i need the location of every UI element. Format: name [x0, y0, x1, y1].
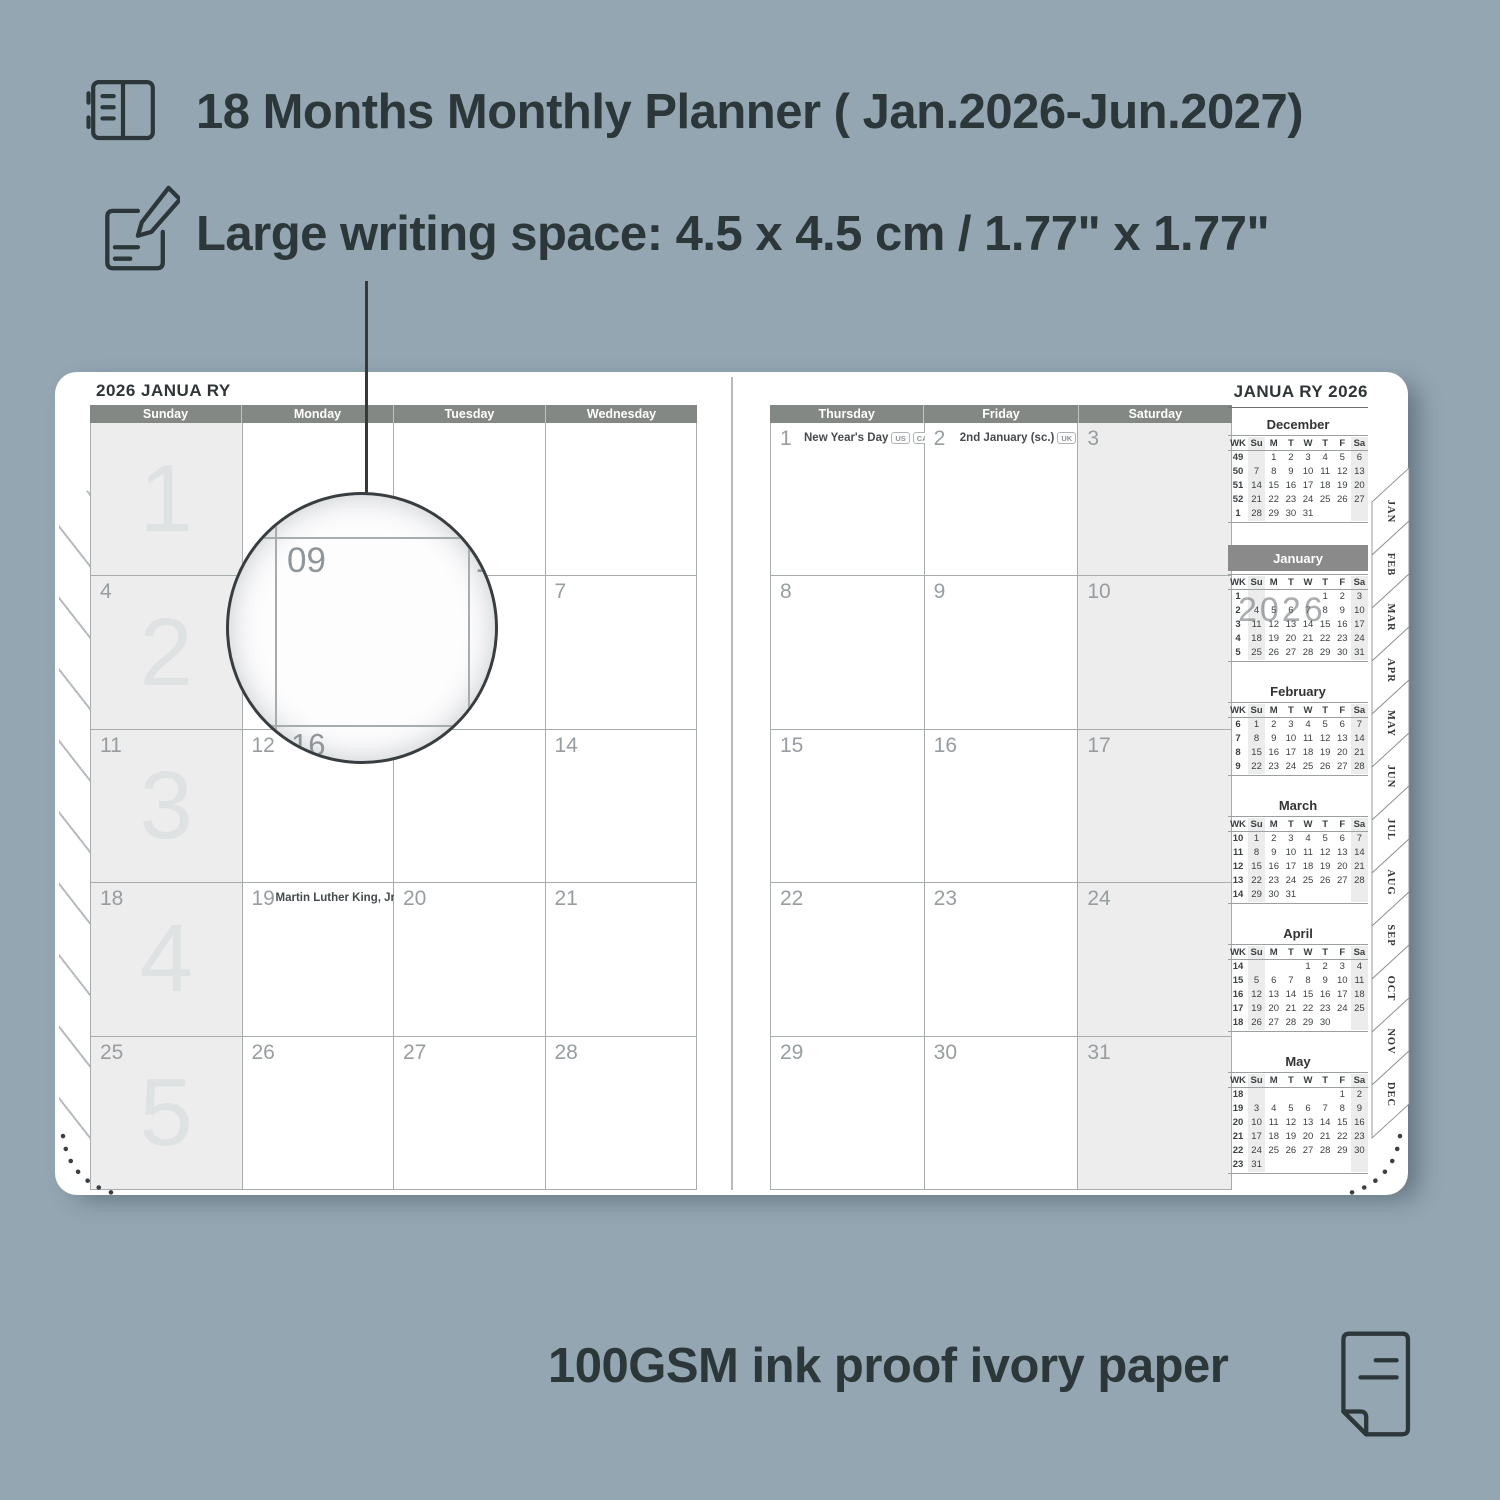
mini-calendar-day: 13	[1334, 732, 1351, 746]
mini-calendar-day: 13	[1228, 874, 1248, 888]
calendar-cell: 1	[91, 423, 243, 576]
mini-calendar-weekday: T	[1282, 576, 1299, 590]
holiday-name: New Year's Day	[804, 432, 888, 444]
calendar-cell: 31	[1078, 1037, 1232, 1190]
mini-calendar-day	[1334, 888, 1351, 902]
mini-calendar-weekday: T	[1317, 818, 1334, 832]
mini-calendar-day: 2	[1317, 960, 1334, 974]
mini-calendar-day: 9	[1317, 974, 1334, 988]
mini-calendar-day: 3	[1351, 590, 1368, 604]
mini-calendar-weekday: W	[1299, 1074, 1316, 1088]
mini-calendar: AprilWKSuMTWTFSa141234155678910111612131…	[1228, 926, 1368, 1032]
month-tab-label: DEC	[1385, 1082, 1396, 1107]
mini-calendar-day: 5	[1317, 718, 1334, 732]
day-header: Wednesday	[546, 405, 697, 423]
date-number: 23	[934, 887, 957, 911]
mini-calendar-day: 52	[1228, 493, 1248, 507]
mini-calendar-day: 6	[1299, 1102, 1316, 1116]
date-number: 16	[934, 734, 957, 758]
calendar-cell: 10	[1078, 576, 1232, 729]
mini-calendar-day: 26	[1334, 493, 1351, 507]
mini-calendar-day: 29	[1248, 888, 1265, 902]
calendar-cell: 19Martin Luther King, Jr. DayUS	[243, 883, 395, 1036]
calendar-cell: 24	[91, 576, 243, 729]
mini-calendar-day: 30	[1282, 507, 1299, 521]
mini-calendar-grid: WKSuMTWTFSa10123456711891011121314121516…	[1228, 816, 1368, 904]
mini-calendar-day: 15	[1228, 974, 1248, 988]
mini-calendar-day: 15	[1248, 746, 1265, 760]
mini-calendar-day: 26	[1282, 1144, 1299, 1158]
mini-calendar-day: 4	[1228, 632, 1248, 646]
mini-calendar-day: 8	[1299, 974, 1316, 988]
mini-calendar-day: 22	[1248, 760, 1265, 774]
mini-calendar-day: 3	[1334, 960, 1351, 974]
mini-calendar-day: 14	[1351, 732, 1368, 746]
mini-calendar-title: May	[1228, 1054, 1368, 1069]
mini-calendar-day: 13	[1265, 988, 1282, 1002]
mini-calendar-weekday: T	[1317, 946, 1334, 960]
mini-calendar-day: 7	[1248, 465, 1265, 479]
mini-calendar-day: 19	[1265, 632, 1282, 646]
mini-calendar-weekday: WK	[1228, 576, 1248, 590]
month-tab-label: MAR	[1385, 603, 1396, 631]
mini-calendar-title: April	[1228, 926, 1368, 941]
mini-calendar-day: 21	[1351, 746, 1368, 760]
mini-calendar-day: 10	[1299, 465, 1316, 479]
right-month-grid: ThursdayFridaySaturday1New Year's DayUSC…	[770, 405, 1232, 1190]
mini-calendar-day: 2	[1265, 718, 1282, 732]
mini-calendar-grid: WKSuMTWTFSa49123456507891011121351141516…	[1228, 435, 1368, 523]
mini-calendar-day: 17	[1282, 746, 1299, 760]
mini-calendar-weekday: F	[1334, 946, 1351, 960]
mini-calendar-day	[1282, 1088, 1299, 1102]
mini-calendar-day: 24	[1282, 760, 1299, 774]
mini-calendar-day: 19	[1317, 860, 1334, 874]
mini-calendar-day: 14	[1351, 846, 1368, 860]
mini-calendar-day	[1317, 1158, 1334, 1172]
mini-calendar-day: 13	[1334, 846, 1351, 860]
mini-calendar-grid: WKSuMTWTFSa18121934567892010111213141516…	[1228, 1072, 1368, 1174]
holiday-label: 2nd January (sc.)UK	[965, 432, 1072, 444]
mini-calendar-day: 26	[1317, 874, 1334, 888]
mini-calendar-day	[1248, 960, 1265, 974]
mini-calendar-grid: WKSuMTWTFSa14123415567891011161213141516…	[1228, 944, 1368, 1032]
mini-calendar-weekday: WK	[1228, 437, 1248, 451]
feature-title-writing-space: Large writing space: 4.5 x 4.5 cm / 1.77…	[196, 206, 1269, 262]
mini-calendar-day	[1248, 1088, 1265, 1102]
mini-calendar-grid: WKSuMTWTFSa61234567789101112131481516171…	[1228, 702, 1368, 776]
mini-calendar-day: 17	[1282, 860, 1299, 874]
mini-calendar-day: 23	[1282, 493, 1299, 507]
mini-calendar-weekday: W	[1299, 437, 1316, 451]
mini-calendar-sidebar: JANUA RY 2026 DecemberWKSuMTWTFSa4912345…	[1228, 382, 1368, 1174]
mini-calendar: DecemberWKSuMTWTFSa491234565078910111213…	[1228, 417, 1368, 523]
mini-calendar-day: 17	[1228, 1002, 1248, 1016]
mini-calendar-day: 20	[1228, 1116, 1248, 1130]
week-number-watermark: 1	[91, 423, 242, 575]
calendar-cell: 15	[771, 730, 925, 883]
mini-calendar-day	[1299, 888, 1316, 902]
mini-calendar-weekday: M	[1265, 818, 1282, 832]
mini-calendar-day: 11	[1228, 846, 1248, 860]
mini-calendar-day	[1351, 1158, 1368, 1172]
month-tab-label: APR	[1385, 658, 1396, 683]
mini-calendar-day: 21	[1282, 1002, 1299, 1016]
mini-calendar-day: 19	[1228, 1102, 1248, 1116]
mini-calendar-day: 10	[1282, 846, 1299, 860]
date-number: 24	[1087, 887, 1110, 911]
mini-calendar-weekday: F	[1334, 576, 1351, 590]
date-number: 3	[1087, 427, 1099, 451]
mini-calendar-day: 31	[1351, 646, 1368, 660]
mini-calendar-day: 14	[1228, 960, 1248, 974]
mini-calendar-day	[1317, 507, 1334, 521]
mini-calendar-weekday: Sa	[1351, 946, 1368, 960]
month-tab-label: JUN	[1385, 765, 1396, 788]
calendar-cell: 28	[546, 1037, 698, 1190]
mini-calendar-day: 25	[1265, 1144, 1282, 1158]
mini-calendar-day: 25	[1299, 874, 1316, 888]
mini-calendar-day	[1265, 960, 1282, 974]
day-header: Thursday	[770, 405, 924, 423]
magnified-grid-line	[229, 537, 495, 539]
mini-calendar-day: 22	[1265, 493, 1282, 507]
calendar-cell: 20	[394, 883, 546, 1036]
mini-calendar-day: 24	[1334, 1002, 1351, 1016]
mini-calendar-day: 20	[1351, 479, 1368, 493]
calendar-cell: 21	[546, 883, 698, 1036]
mini-calendar-weekday: M	[1265, 704, 1282, 718]
mini-calendar-day: 8	[1228, 746, 1248, 760]
spine-divider	[731, 377, 733, 1190]
mini-calendar-day: 51	[1228, 479, 1248, 493]
mini-calendar-day: 11	[1299, 846, 1316, 860]
mini-calendar-day: 24	[1282, 874, 1299, 888]
mini-calendar-weekday: WK	[1228, 946, 1248, 960]
mini-calendar-weekday: W	[1299, 818, 1316, 832]
magnified-date: 09	[287, 541, 326, 581]
mini-calendar-weekday: Sa	[1351, 1074, 1368, 1088]
mini-calendar-day: 20	[1334, 860, 1351, 874]
mini-calendar-day: 14	[1228, 888, 1248, 902]
date-number: 7	[555, 580, 567, 604]
mini-calendar-day	[1248, 451, 1265, 465]
date-number: 27	[403, 1041, 426, 1065]
month-tab-label: AUG	[1385, 869, 1396, 895]
magnified-grid-line	[229, 725, 495, 727]
mini-calendar-day: 19	[1334, 479, 1351, 493]
mini-calendar-day: 5	[1228, 646, 1248, 660]
mini-calendar-day: 28	[1317, 1144, 1334, 1158]
mini-calendar-day: 16	[1317, 988, 1334, 1002]
mini-calendar-day: 15	[1248, 860, 1265, 874]
month-tab-label: MAY	[1385, 710, 1396, 737]
mini-calendar-day: 10	[1248, 1116, 1265, 1130]
mini-calendar-day: 27	[1334, 874, 1351, 888]
date-number: 25	[100, 1041, 123, 1065]
mini-calendar-day: 25	[1248, 646, 1265, 660]
date-number: 10	[1087, 580, 1110, 604]
date-number: 12	[252, 734, 275, 758]
mini-calendar-day: 20	[1299, 1130, 1316, 1144]
mini-calendar-day: 4	[1265, 1102, 1282, 1116]
mini-calendar-day	[1334, 1158, 1351, 1172]
mini-calendar-day: 22	[1317, 632, 1334, 646]
mini-calendar-weekday: F	[1334, 704, 1351, 718]
mini-calendar-weekday: T	[1282, 704, 1299, 718]
mini-calendar-day: 7	[1317, 1102, 1334, 1116]
mini-calendar-day: 22	[1334, 1130, 1351, 1144]
mini-calendar-day: 15	[1265, 479, 1282, 493]
product-image: 18 Months Monthly Planner ( Jan.2026-Jun…	[0, 0, 1500, 1500]
calendar-cell	[546, 423, 698, 576]
mini-calendar-day: 3	[1299, 451, 1316, 465]
mini-calendar-weekday: F	[1334, 1074, 1351, 1088]
mini-calendar-day: 50	[1228, 465, 1248, 479]
mini-calendar-day: 9	[1228, 760, 1248, 774]
mini-calendar-day: 1	[1248, 832, 1265, 846]
mini-calendar-day: 12	[1317, 846, 1334, 860]
mini-calendar-day: 28	[1351, 760, 1368, 774]
day-header-row: ThursdayFridaySaturday	[770, 405, 1232, 423]
mini-calendar-day: 28	[1282, 1016, 1299, 1030]
mini-calendar-day: 21	[1228, 1130, 1248, 1144]
mini-calendar-day	[1334, 1016, 1351, 1030]
mini-calendar-day: 11	[1351, 974, 1368, 988]
mini-calendar-day: 22	[1228, 1144, 1248, 1158]
mini-calendar-weekday: M	[1265, 946, 1282, 960]
mini-calendar-weekday: W	[1299, 704, 1316, 718]
date-number: 8	[780, 580, 792, 604]
calendar-cell: 30	[925, 1037, 1079, 1190]
calendar-cell: 7	[546, 576, 698, 729]
mini-calendar-day: 17	[1248, 1130, 1265, 1144]
mini-calendar-day	[1299, 1158, 1316, 1172]
mini-calendar-day: 2	[1265, 832, 1282, 846]
magnifier-circle: 09 10 16	[226, 492, 498, 764]
date-number: 17	[1087, 734, 1110, 758]
mini-calendar-weekday: Sa	[1351, 437, 1368, 451]
mini-calendar-day	[1299, 1088, 1316, 1102]
mini-calendar-day: 26	[1248, 1016, 1265, 1030]
mini-calendar-day: 1	[1334, 1088, 1351, 1102]
paper-sheet-icon	[1322, 1328, 1418, 1440]
mini-calendar-weekday: Sa	[1351, 576, 1368, 590]
mini-calendar-day: 18	[1228, 1016, 1248, 1030]
mini-calendar-day: 24	[1248, 1144, 1265, 1158]
mini-calendar-day	[1317, 888, 1334, 902]
calendar-cell: 16	[925, 730, 1079, 883]
date-number: 2	[934, 427, 946, 451]
year-watermark: 2026	[1238, 591, 1326, 630]
mini-calendar-day: 18	[1317, 479, 1334, 493]
month-tab-label: SEP	[1385, 924, 1396, 946]
mini-calendar-day: 12	[1228, 860, 1248, 874]
mini-calendar-day	[1317, 1088, 1334, 1102]
mini-calendar-day: 30	[1265, 888, 1282, 902]
mini-calendar-day: 29	[1334, 1144, 1351, 1158]
mini-calendar-day: 8	[1248, 846, 1265, 860]
mini-calendar-day: 30	[1351, 1144, 1368, 1158]
mini-calendar-day: 28	[1248, 507, 1265, 521]
mini-calendar-day: 25	[1317, 493, 1334, 507]
country-badge: US	[891, 432, 909, 444]
calendar-cell: 26	[243, 1037, 395, 1190]
magnified-date: 16	[291, 727, 325, 763]
date-number: 22	[780, 887, 803, 911]
magnified-grid-line	[275, 495, 277, 761]
mini-calendar-weekday: Su	[1248, 576, 1265, 590]
mini-calendar-day: 30	[1334, 646, 1351, 660]
month-tab-label: JAN	[1385, 500, 1396, 523]
mini-calendar-day: 29	[1265, 507, 1282, 521]
mini-calendar-weekday: Sa	[1351, 818, 1368, 832]
mini-calendar-day: 9	[1351, 1102, 1368, 1116]
mini-calendar-weekday: W	[1299, 946, 1316, 960]
mini-calendar-day: 8	[1265, 465, 1282, 479]
mini-calendar-weekday: W	[1299, 576, 1316, 590]
mini-calendar-day	[1282, 960, 1299, 974]
date-number: 4	[100, 580, 112, 604]
calendar-cell: 1New Year's DayUSCAUKIE	[771, 423, 925, 576]
mini-calendar-day: 25	[1299, 760, 1316, 774]
mini-calendar-day: 14	[1317, 1116, 1334, 1130]
mini-calendar-day: 1	[1299, 960, 1316, 974]
mini-calendar-weekday: Su	[1248, 1074, 1265, 1088]
mini-calendar-day: 18	[1228, 1088, 1248, 1102]
feature-title-planner-range: 18 Months Monthly Planner ( Jan.2026-Jun…	[196, 84, 1303, 140]
mini-calendar-weekday: Su	[1248, 946, 1265, 960]
mini-calendar-day: 3	[1282, 718, 1299, 732]
mini-calendar-list: DecemberWKSuMTWTFSa491234565078910111213…	[1228, 417, 1368, 1174]
date-number: 20	[403, 887, 426, 911]
mini-calendar-day: 30	[1317, 1016, 1334, 1030]
mini-calendar-day: 4	[1299, 832, 1316, 846]
mini-calendar-day: 27	[1351, 493, 1368, 507]
mini-calendar-day: 16	[1265, 860, 1282, 874]
mini-calendar-day: 18	[1265, 1130, 1282, 1144]
mini-calendar-day: 28	[1299, 646, 1316, 660]
left-page-title: 2026 JANUA RY	[96, 381, 231, 401]
mini-calendar-day: 22	[1248, 874, 1265, 888]
calendar-cells: 1New Year's DayUSCAUKIE22nd January (sc.…	[770, 423, 1232, 1190]
mini-calendar-day: 18	[1248, 632, 1265, 646]
mini-calendar-day: 6	[1351, 451, 1368, 465]
mini-calendar-day: 10	[1334, 974, 1351, 988]
mini-calendar-day: 7	[1351, 718, 1368, 732]
mini-calendar-day: 17	[1334, 988, 1351, 1002]
mini-calendar-day	[1351, 507, 1368, 521]
mini-calendar-day: 16	[1282, 479, 1299, 493]
mini-calendar-day: 21	[1317, 1130, 1334, 1144]
mini-calendar-day: 14	[1282, 988, 1299, 1002]
day-header-row: SundayMondayTuesdayWednesday	[90, 405, 697, 423]
day-header: Tuesday	[394, 405, 546, 423]
calendar-cell: 24	[1078, 883, 1232, 1036]
mini-calendar-day: 20	[1265, 1002, 1282, 1016]
mini-calendar-day: 12	[1248, 988, 1265, 1002]
mini-calendar-day: 19	[1248, 1002, 1265, 1016]
mini-calendar-day: 10	[1351, 604, 1368, 618]
mini-calendar-day: 23	[1228, 1158, 1248, 1172]
calendar-cell: 311	[91, 730, 243, 883]
mini-calendar-day: 7	[1228, 732, 1248, 746]
mini-calendar-day: 16	[1265, 746, 1282, 760]
mini-calendar-day: 23	[1317, 1002, 1334, 1016]
mini-calendar: JanuaryWKSuMTWTFSa1123245678910311121314…	[1228, 545, 1368, 662]
mini-calendar-day: 8	[1248, 732, 1265, 746]
mini-calendar-day: 18	[1351, 988, 1368, 1002]
calendar-cell: 17	[1078, 730, 1232, 883]
mini-calendar-day: 1	[1228, 507, 1248, 521]
date-number: 31	[1087, 1041, 1110, 1065]
mini-calendar-day: 5	[1334, 451, 1351, 465]
mini-calendar-weekday: F	[1334, 437, 1351, 451]
mini-calendar-title: March	[1228, 798, 1368, 813]
mini-calendar-day: 4	[1351, 960, 1368, 974]
mini-calendar-day: 19	[1282, 1130, 1299, 1144]
mini-calendar-day: 16	[1351, 1116, 1368, 1130]
day-header: Monday	[242, 405, 394, 423]
mini-calendar-day: 16	[1228, 988, 1248, 1002]
mini-calendar-day: 29	[1317, 646, 1334, 660]
mini-calendar-day: 5	[1317, 832, 1334, 846]
mini-calendar: FebruaryWKSuMTWTFSa612345677891011121314…	[1228, 684, 1368, 776]
mini-calendar-day: 21	[1351, 860, 1368, 874]
mini-calendar-title: December	[1228, 417, 1368, 432]
mini-calendar-day: 27	[1299, 1144, 1316, 1158]
mini-calendar-title: January	[1228, 545, 1368, 571]
mini-calendar-day	[1265, 1158, 1282, 1172]
month-tab-label: NOV	[1385, 1028, 1396, 1054]
mini-calendar-day: 13	[1351, 465, 1368, 479]
date-number: 11	[100, 734, 122, 758]
mini-calendar-day: 5	[1248, 974, 1265, 988]
mini-calendar-day: 2	[1351, 1088, 1368, 1102]
mini-calendar-day	[1334, 507, 1351, 521]
date-number: 14	[555, 734, 578, 758]
mini-calendar-day	[1282, 1158, 1299, 1172]
mini-calendar-day: 15	[1334, 1116, 1351, 1130]
mini-calendar-day: 7	[1282, 974, 1299, 988]
date-number: 30	[934, 1041, 957, 1065]
mini-calendar-day: 24	[1299, 493, 1316, 507]
mini-calendar-weekday: M	[1265, 1074, 1282, 1088]
mini-calendar-day: 12	[1317, 732, 1334, 746]
mini-calendar-day: 22	[1299, 1002, 1316, 1016]
date-number: 1	[780, 427, 792, 451]
mini-calendar-day: 6	[1334, 832, 1351, 846]
mini-calendar-day: 3	[1282, 832, 1299, 846]
mini-calendar-weekday: T	[1282, 1074, 1299, 1088]
mini-calendar-day: 1	[1248, 718, 1265, 732]
mini-calendar-day: 14	[1248, 479, 1265, 493]
mini-calendar-day: 6	[1228, 718, 1248, 732]
magnified-date: 10	[475, 541, 498, 581]
mini-calendar-day: 17	[1299, 479, 1316, 493]
date-number: 19	[252, 887, 275, 911]
date-number: 9	[934, 580, 946, 604]
country-badge: UK	[1057, 432, 1076, 444]
mini-calendar-weekday: Su	[1248, 704, 1265, 718]
mini-calendar-day: 6	[1334, 718, 1351, 732]
holiday-name: 2nd January (sc.)	[960, 432, 1055, 444]
date-number: 18	[100, 887, 123, 911]
mini-calendar-day: 11	[1265, 1116, 1282, 1130]
mini-calendar-day: 11	[1299, 732, 1316, 746]
mini-calendar-weekday: T	[1317, 1074, 1334, 1088]
planner-spread: 2026 JANUA RY SundayMondayTuesdayWednesd…	[55, 372, 1408, 1195]
